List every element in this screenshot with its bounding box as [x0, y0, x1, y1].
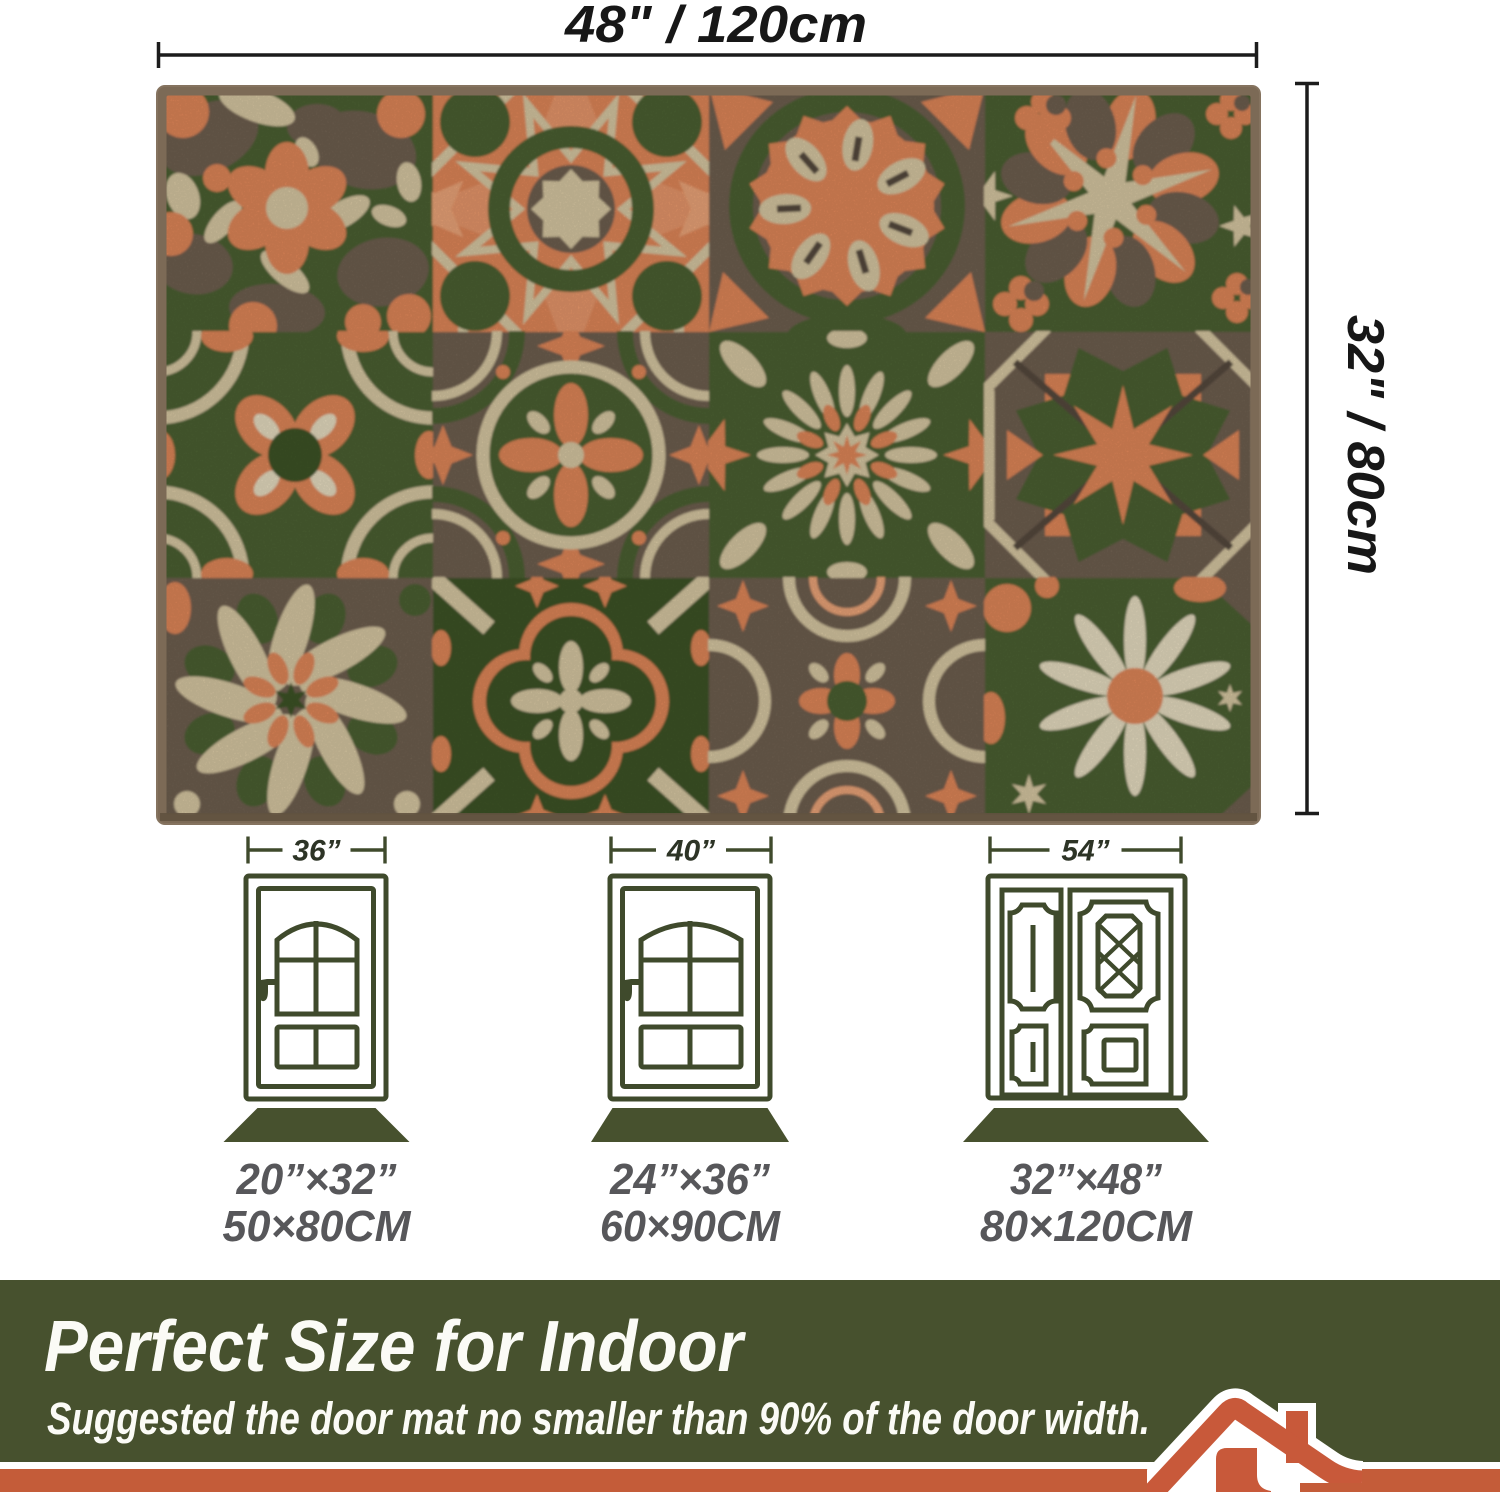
svg-text:60×90CM: 60×90CM — [600, 1202, 781, 1251]
svg-text:36”: 36” — [292, 835, 340, 868]
svg-text:32" / 80cm: 32" / 80cm — [1336, 315, 1394, 575]
svg-text:40”: 40” — [666, 835, 715, 868]
svg-text:80×120CM: 80×120CM — [980, 1202, 1193, 1251]
svg-text:Suggested the door mat no smal: Suggested the door mat no smaller than 9… — [47, 1393, 1150, 1444]
svg-text:50×80CM: 50×80CM — [223, 1202, 412, 1251]
svg-text:48" / 120cm: 48" / 120cm — [564, 0, 867, 54]
svg-text:24”×36”: 24”×36” — [609, 1155, 770, 1204]
svg-text:Perfect Size for Indoor: Perfect Size for Indoor — [44, 1307, 747, 1387]
svg-text:32”×48”: 32”×48” — [1010, 1155, 1162, 1204]
svg-text:54”: 54” — [1061, 835, 1109, 868]
svg-text:20”×32”: 20”×32” — [236, 1155, 397, 1204]
